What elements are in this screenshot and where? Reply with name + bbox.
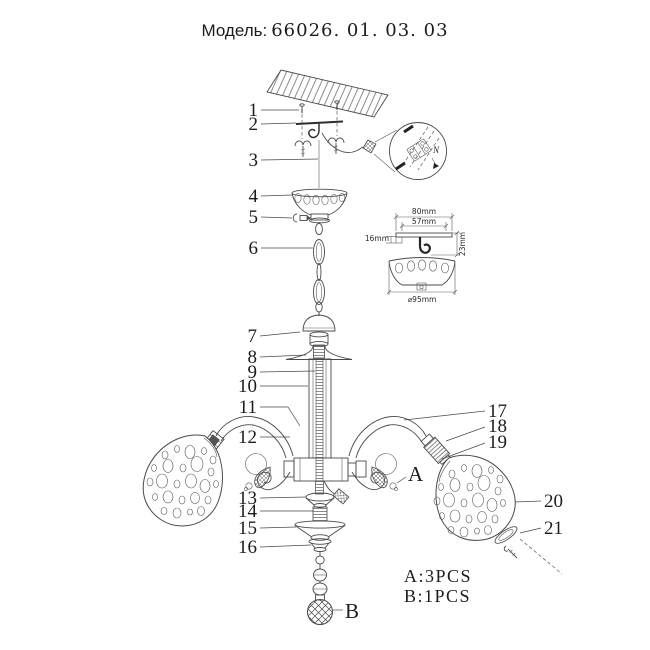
dim-right-height: 23mm — [458, 232, 467, 256]
screw-icon — [300, 104, 304, 113]
bracket-plate — [396, 233, 452, 237]
neutral-wire-label: N — [432, 145, 440, 155]
legend-b-count: B:1PCS — [404, 586, 471, 606]
crystal-ball — [308, 600, 333, 625]
terminal-block-small — [363, 140, 376, 153]
callout-12: 12 — [238, 427, 257, 448]
bowl-small — [309, 539, 331, 545]
ceiling-hook — [309, 123, 319, 137]
dimension-drawing: 80mm 57mm 16mm 23mm ⌀9 — [365, 207, 467, 304]
arrow-icon — [433, 163, 439, 169]
callout-10: 10 — [238, 376, 257, 397]
dim-left-height: 16mm — [365, 234, 389, 243]
callout-4: 4 — [249, 186, 259, 207]
terminal-block-detail — [407, 139, 431, 162]
bowl-large — [295, 521, 345, 528]
hanging-chain — [314, 222, 325, 316]
threaded-rod — [316, 359, 323, 458]
callout-7: 7 — [248, 326, 258, 347]
bead — [316, 556, 324, 564]
flower-tip — [390, 483, 396, 489]
hub-wire — [324, 481, 335, 494]
column-flare — [286, 345, 352, 360]
dim-canopy-diameter: ⌀95mm — [408, 295, 437, 304]
callout-19: 19 — [488, 432, 507, 453]
bottom-threaded-rod — [313, 507, 327, 521]
wiring-magnifier-detail: N — [322, 123, 447, 180]
top-nut — [314, 345, 325, 358]
socket-stub — [348, 463, 356, 476]
shade-screw — [504, 546, 517, 558]
callout-21: 21 — [544, 518, 563, 539]
wire-plug — [333, 489, 349, 504]
finial-cap — [303, 315, 335, 346]
dim-inner-width: 57mm — [412, 217, 436, 226]
callout-20: 20 — [544, 491, 563, 512]
wing-anchors — [295, 138, 344, 157]
canopy-profile — [389, 258, 455, 262]
legend-a-count: A:3PCS — [404, 566, 472, 586]
chandelier-diagram: N — [0, 0, 650, 650]
marker-a: A — [408, 462, 424, 486]
marker-b: B — [345, 599, 359, 623]
right-shade — [434, 455, 562, 574]
callout-3: 3 — [249, 150, 259, 171]
right-arm-fitting — [356, 461, 366, 477]
dim-outer-width: 80mm — [412, 207, 436, 216]
hook-detail — [420, 237, 430, 253]
left-shade — [143, 435, 222, 526]
left-arm-fitting — [284, 461, 294, 477]
assembly-instruction-sheet: Модель: 66026. 01. 03. 03 — [0, 0, 650, 650]
callout-2: 2 — [249, 114, 259, 135]
leaf-ornament — [255, 467, 271, 488]
leaf-ornament — [372, 467, 388, 488]
callout-6: 6 — [249, 238, 259, 259]
callout-11: 11 — [239, 397, 257, 418]
callout-5: 5 — [249, 207, 259, 228]
callout-15: 15 — [238, 518, 257, 539]
callout-numbers: 1 2 3 4 5 6 7 8 9 10 11 12 13 14 15 16 1… — [238, 100, 563, 558]
wing-anchor-icon — [295, 141, 311, 157]
callout-16: 16 — [238, 537, 257, 558]
set-screw — [293, 214, 311, 222]
center-column — [309, 359, 331, 458]
bottom-stack — [295, 481, 345, 625]
